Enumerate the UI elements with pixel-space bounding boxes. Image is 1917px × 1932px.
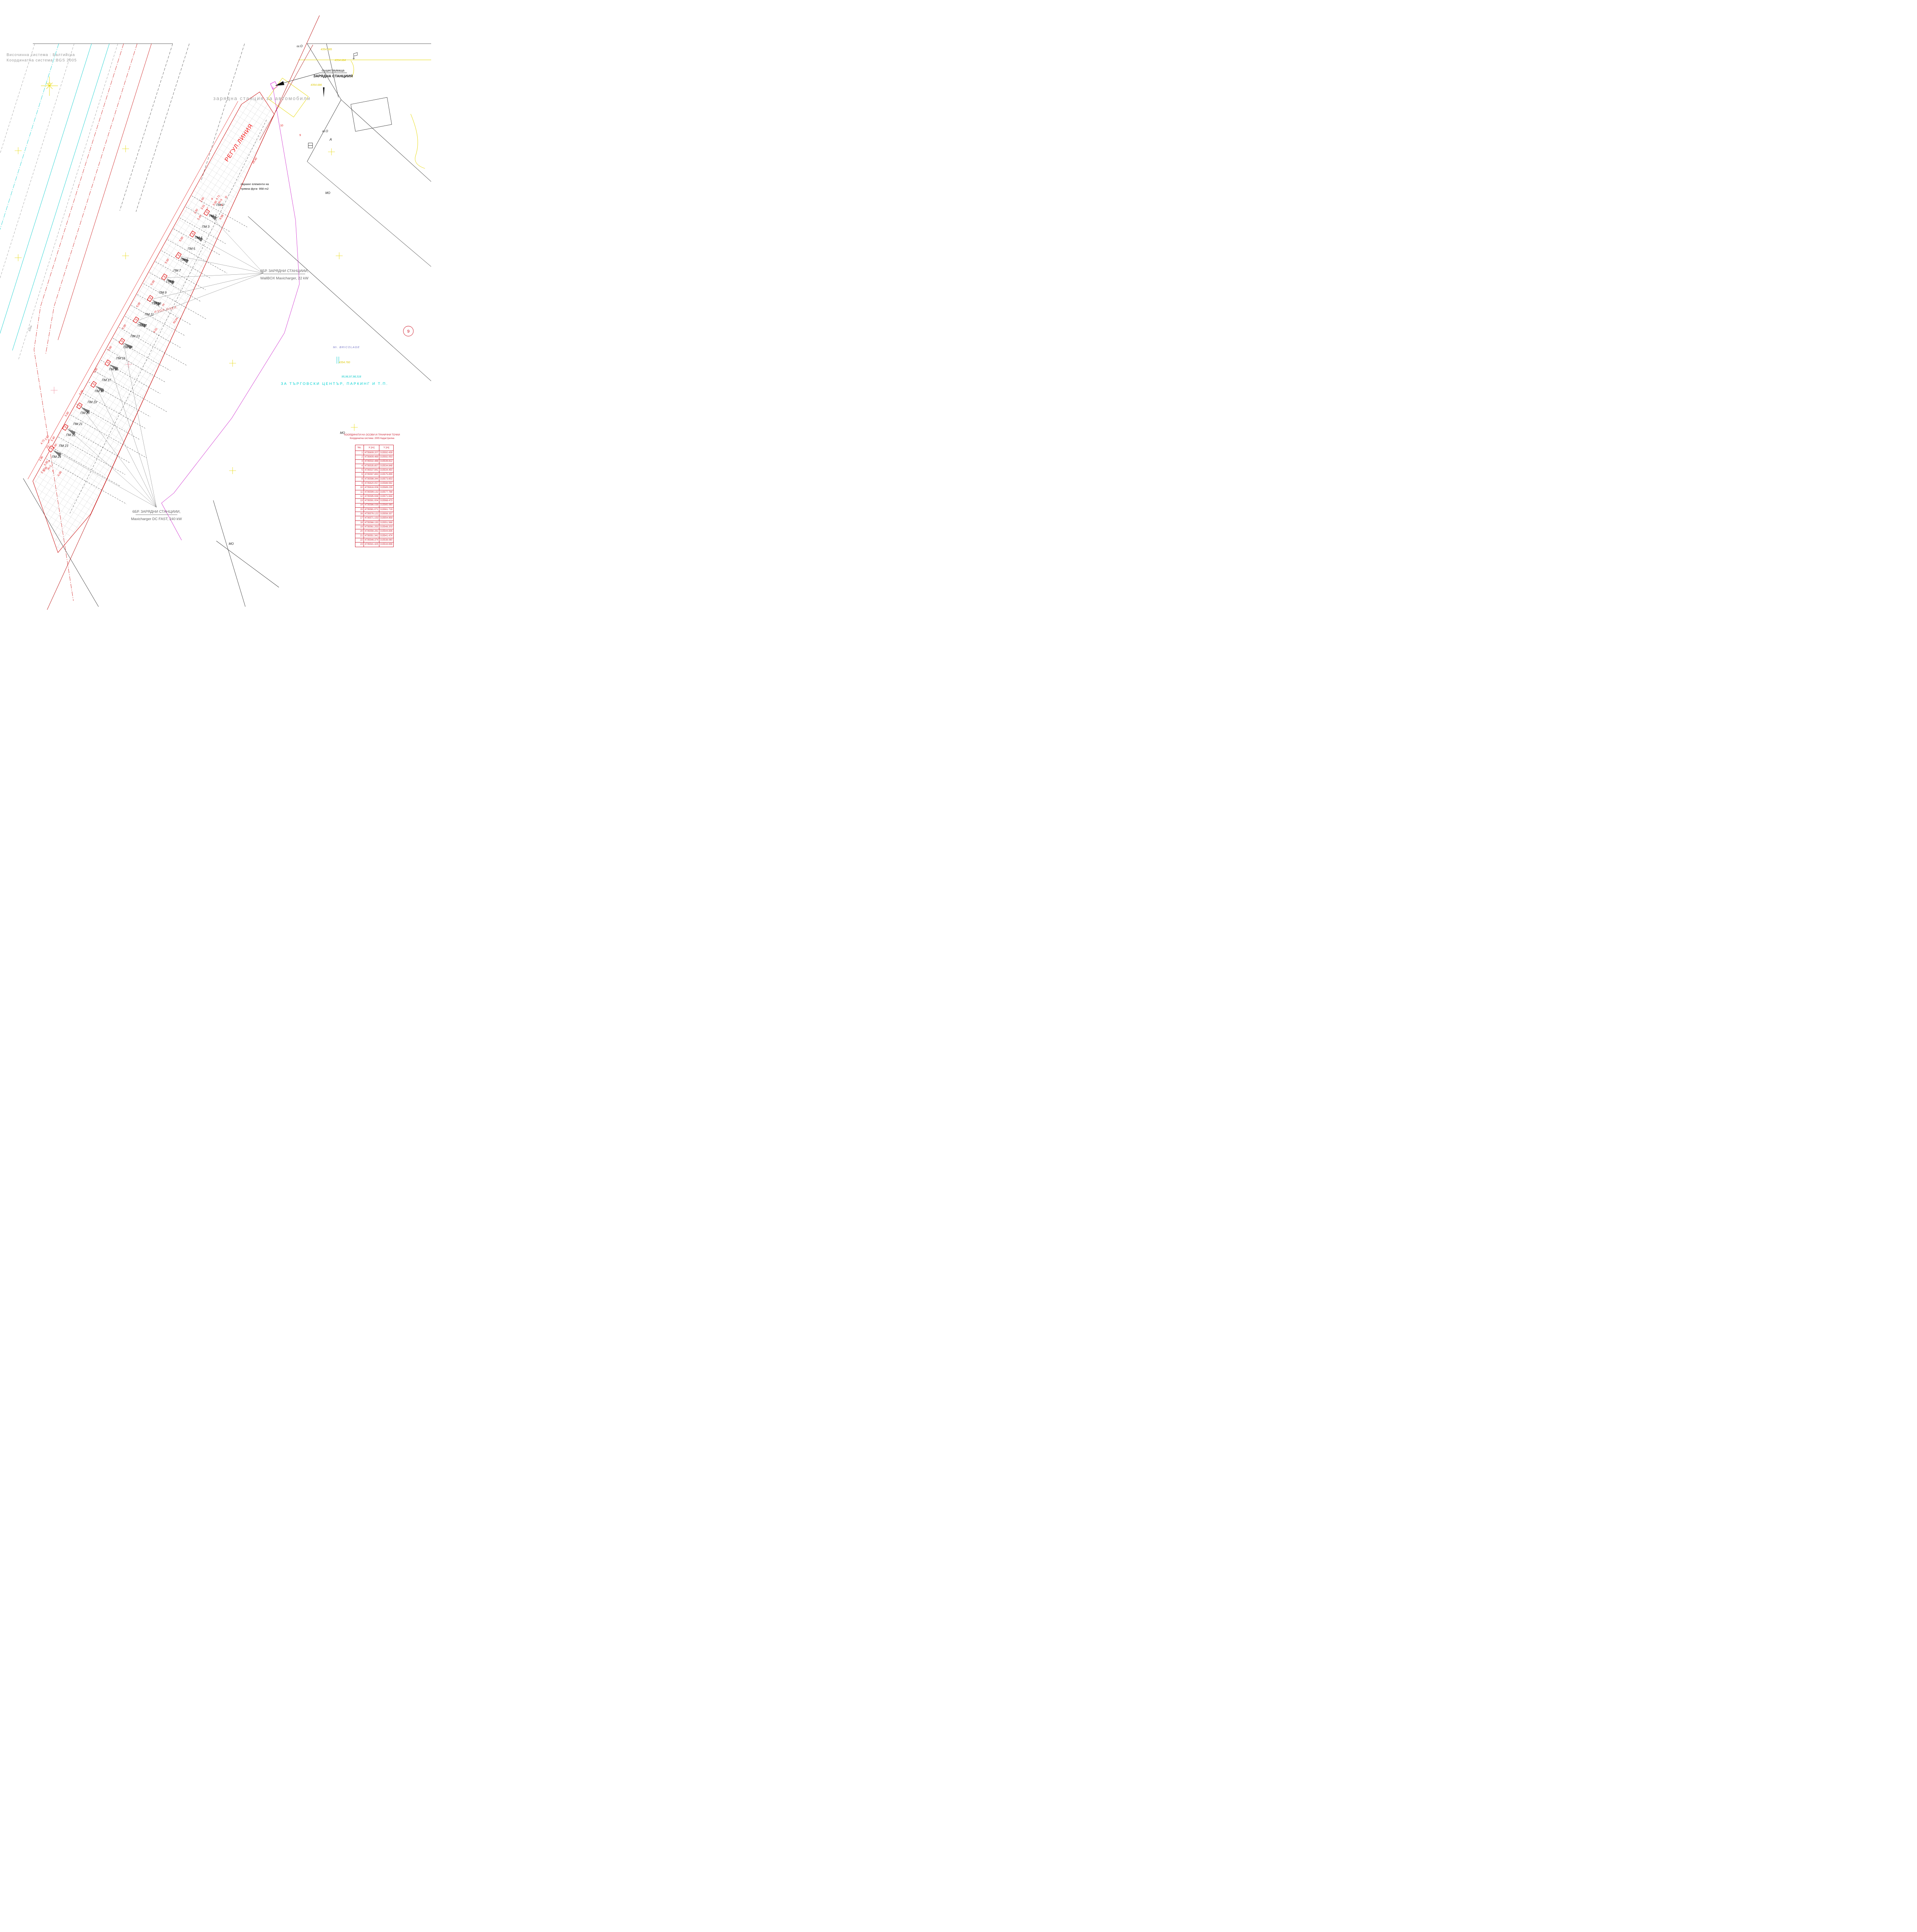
point-x: 4735566.193 [364,520,379,525]
coord-table-row: 144735586.039315565.080 [355,503,394,507]
annotation-num: 8 [211,198,213,201]
dcfast-label-line1: 6БР. ЗАРЯДНИ СТАНЦИИИ, [133,510,181,514]
bricolage-label: Mr. BRICOLAGE [333,345,360,349]
wallbox-label-line1: 6БР. ЗАРЯДНИ СТАНЦИИИ, [260,269,309,273]
point-y: 315539.812 [379,459,394,464]
coord-table-row: 194735561.253315548.203 [355,525,394,529]
site-plan-sheet: Височинна система : Балтийска Координатн… [0,0,431,610]
col-header-y: Y [m] [379,445,394,451]
parking-note-line1: паркинг елементи на [241,182,269,186]
point-y: 315571.844 [379,494,394,498]
point-y: 315589.239 [379,486,394,490]
parking-spot-label: ПМ 13 [131,335,140,338]
point-y: 315534.848 [379,464,394,468]
coord-table-row: 154735581.071315561.719 [355,507,394,512]
point-y: 315565.080 [379,503,394,507]
point-no: 9 [355,481,364,486]
parking-spot-label: ПМ 4 [195,236,203,240]
annotation-mo: ш.О [297,44,303,48]
annotation-yel: 4354.686 [311,84,322,87]
coord-table-row: 184735566.193315551.568 [355,520,394,525]
point-no: 10 [355,486,364,490]
point-no: 18 [355,520,364,525]
annotation-gry: 839а [28,325,33,332]
coord-table-row: 234735541.425315534.698 [355,543,394,547]
coord-table-row: 164735576.122315558.337 [355,512,394,516]
annotation-mo: МО [325,191,330,195]
annotation-yel: 4354.685 [321,48,332,51]
parking-spot-label: ПМ 12 [138,324,147,327]
annotation-num: 4 [52,470,54,473]
point-y: 315541.474 [379,534,394,538]
lamp-flag-icon [353,53,357,59]
coord-table-row: 84735598.344315573.653 [355,477,394,481]
parking-spot-label: ПМ 3 [202,225,210,229]
parking-spot-label: ПМ 11 [145,313,154,316]
annotation-dim: 2.50 [44,435,50,440]
point-x: 4735595.938 [364,494,379,498]
parking-spot-label: ПМ 5 [188,247,195,250]
point-y: 315551.568 [379,520,394,525]
point-x: 4735597.883 [364,473,379,477]
coordinate-table-titles: КООРДИНАТИ НА ОСОВИ И ГРАНИЧНИ ТОЧКИ Коо… [333,434,411,440]
point-x: 4735571.153 [364,516,379,520]
north-tick-icon [323,87,325,97]
point-y: 315558.337 [379,512,394,516]
point-y: 315568.473 [379,499,394,503]
point-x: 4735556.281 [364,529,379,534]
point-x: 4735532.488 [364,459,379,464]
point-no: 23 [355,543,364,547]
coord-table-row: 114735599.132315577.788 [355,490,394,494]
point-y: 315561.719 [379,507,394,512]
annotation-yel: 4354.760 [339,361,350,364]
table-header-row: No. X [m] Y [m] [355,445,394,451]
point-no: 8 [355,477,364,481]
coord-table-row: 44735535.857315534.848 [355,464,394,468]
parking-strip-hatched [33,92,274,553]
point-y: 315534.698 [379,543,394,547]
point-no: 17 [355,516,364,520]
table-title: КООРДИНАТИ НА ОСОВИ И ГРАНИЧНИ ТОЧКИ [333,434,411,436]
coord-table-row: 54735537.941315534.450 [355,468,394,473]
coord-table-row: 14735609.207315592.439 [355,451,394,455]
point-x: 4735598.344 [364,477,379,481]
annotation-num: 11 [224,196,227,199]
annotation-num: 5 [48,460,50,463]
parking-spot-label: ПМ 9 [159,291,167,294]
parking-spot-label: ПМ 6 [181,258,189,262]
coordinate-table: No. X [m] Y [m] 14735609.207315592.43924… [355,445,394,547]
point-y: 315577.788 [379,490,394,494]
point-no: 1 [355,451,364,455]
annotation-dim: 4.72 [40,439,46,445]
coord-table-row: 94735620.057315588.592 [355,481,394,486]
parking-spot-label: ПМ 7 [173,269,181,272]
annotation-num: 2 [207,207,208,210]
annotation-yel: 4354.684 [335,59,346,62]
point-no: 20 [355,529,364,534]
sheet-number: 9 [407,329,410,334]
point-y: 315592.439 [379,451,394,455]
coord-table-row: 174735571.153315554.959 [355,516,394,520]
coord-table-row: 124735595.938315571.844 [355,494,394,498]
street-label: зарядна станция за автомобили [213,95,311,101]
point-x: 4735609.207 [364,451,379,455]
point-x: 4735609.469 [364,455,379,459]
parking-spot-label: ПМ 8 [167,280,174,283]
parking-spot-label: ПМ 16 [109,367,119,371]
coord-table-row: 24735609.469315592.053 [355,455,394,459]
point-no: 12 [355,494,364,498]
point-x: 4735537.941 [364,468,379,473]
annotation-num: 6 [221,204,223,207]
point-no: 21 [355,534,364,538]
parking-spot-label: ПМ 21 [73,422,83,426]
annotation-num: 10 [280,124,283,127]
point-no: 2 [355,455,364,459]
parking-note-line2: тревна фуга- 958 m2 [241,187,269,190]
parking-spot-label: ПМ 10 [152,302,161,305]
point-y: 315588.592 [379,481,394,486]
commercial-zone-label: ЗА ТЪРГОВСКИ ЦЕНТЪР, ПАРКИНГ И Т.П. [281,382,388,386]
coord-table-row: 34735532.488315539.812 [355,459,394,464]
parking-note: паркинг елементи на тревна фуга- 958 m2 [241,182,269,190]
point-y: 315534.450 [379,468,394,473]
point-x: 4735546.374 [364,538,379,542]
point-no: 6 [355,473,364,477]
point-x: 4735616.006 [364,486,379,490]
wallbox-label-line2: WallBOX Maxicharger, 22 kW [260,276,309,281]
existing-station-line2: ЗАРЯДНА СТАНЦИИЯ [313,74,353,78]
coord-table-row: 204735556.281315544.836 [355,529,394,534]
shaft-symbol-icon [308,143,313,148]
point-x: 4735535.857 [364,464,379,468]
point-no: 4 [355,464,364,468]
parking-spot-label: ПМ 15 [116,357,126,360]
parking-spot-label: ПМ 22 [66,433,76,437]
point-x: 4735599.132 [364,490,379,494]
coord-table-row: 224735546.374315538.080 [355,538,394,542]
wallbox-chargers-label: 6БР. ЗАРЯДНИ СТАНЦИИИ, WallBOX Maxicharg… [260,269,309,281]
parking-spot-label: ПМ 14 [124,346,133,349]
dcfast-chargers-label: 6БР. ЗАРЯДНИ СТАНЦИИИ, Maxicharger DC FA… [131,510,182,521]
point-x: 4735576.122 [364,512,379,516]
parking-spot-label: ПМ 20 [81,412,90,415]
annotation-cy2: 95,96,97,98,318 [342,376,361,378]
parking-spot-label: ПМ 24 [52,455,61,459]
annotation-moA: A [329,138,332,141]
annotation-mo: ш.О [322,129,328,133]
point-no: 13 [355,499,364,503]
parking-spot-label: ПМ 18 [95,389,104,393]
point-x: 4735581.071 [364,507,379,512]
point-y: 315592.053 [379,455,394,459]
parking-spot-label: ПМ 17 [102,379,111,382]
point-y: 315544.836 [379,529,394,534]
col-header-x: X [m] [364,445,379,451]
point-no: 14 [355,503,364,507]
coord-table-row: 64735597.883315575.899 [355,473,394,477]
point-no: 3 [355,459,364,464]
annotation-dim: 1.96 [39,456,44,461]
coord-table-row: 104735616.006315589.239 [355,486,394,490]
point-no: 16 [355,512,364,516]
point-no: 19 [355,525,364,529]
sheet-number-circle: 9 [403,326,413,336]
parking-spot-label: ПМ 19 [88,400,97,404]
point-no: 11 [355,490,364,494]
parking-spot-label: ПМ 2 [209,214,217,218]
point-y: 315548.203 [379,525,394,529]
existing-station-line1: съществуваща [322,68,345,72]
point-x: 4735551.341 [364,534,379,538]
leader-fan-line [208,213,263,273]
dcfast-label-line2: Maxicharger DC FAST, 240 kW [131,517,182,521]
point-y: 315554.959 [379,516,394,520]
point-no: 5 [355,468,364,473]
point-x: 4735591.004 [364,499,379,503]
table-subtitle: Координатна система: 2005 Кадастрална [333,437,411,440]
point-y: 315573.653 [379,477,394,481]
annotation-num: 9 [299,134,301,137]
point-x: 4735561.253 [364,525,379,529]
point-no: 22 [355,538,364,542]
coord-table-row: 134735591.004315568.473 [355,499,394,503]
point-no: 15 [355,507,364,512]
parking-spot-label: ПМ 23 [59,444,68,448]
coord-table-row: 214735551.341315541.474 [355,534,394,538]
point-x: 4735541.425 [364,543,379,547]
annotation-mo: МО [229,542,234,546]
point-x: 4735586.039 [364,503,379,507]
point-y: 315538.080 [379,538,394,542]
compass-star-icon [41,77,58,96]
point-x: 4735620.057 [364,481,379,486]
col-header-no: No. [355,445,364,451]
point-y: 315575.899 [379,473,394,477]
